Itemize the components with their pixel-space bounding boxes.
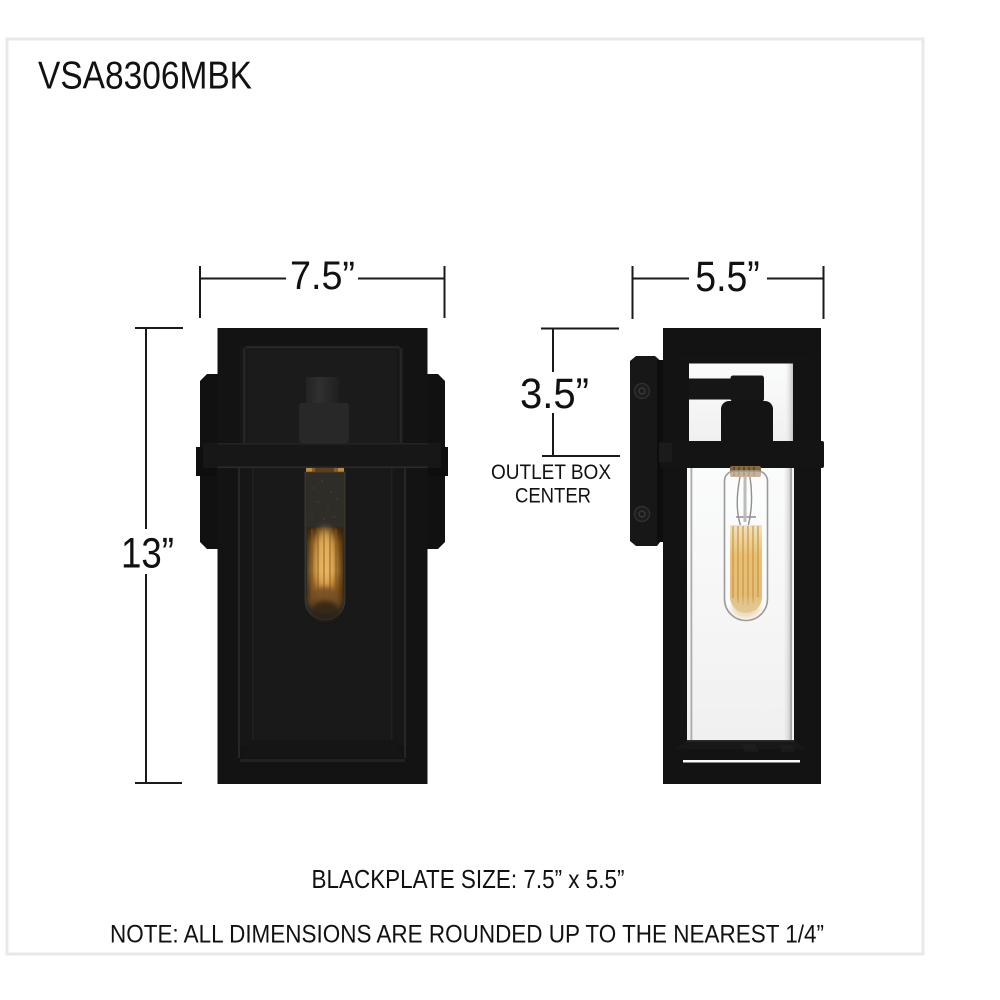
svg-text:BLACKPLATE SIZE: 7.5” x 5.5”: BLACKPLATE SIZE: 7.5” x 5.5”	[312, 864, 625, 894]
svg-text:5.5”: 5.5”	[695, 253, 760, 301]
svg-text:13”: 13”	[121, 530, 174, 578]
svg-text:3.5”: 3.5”	[520, 370, 589, 418]
svg-text:CENTER: CENTER	[515, 484, 591, 508]
svg-text:NOTE: ALL DIMENSIONS ARE ROUND: NOTE: ALL DIMENSIONS ARE ROUNDED UP TO T…	[110, 921, 824, 949]
svg-text:OUTLET BOX: OUTLET BOX	[491, 460, 611, 484]
svg-text:7.5”: 7.5”	[290, 254, 355, 298]
svg-text:VSA8306MBK: VSA8306MBK	[38, 55, 252, 98]
